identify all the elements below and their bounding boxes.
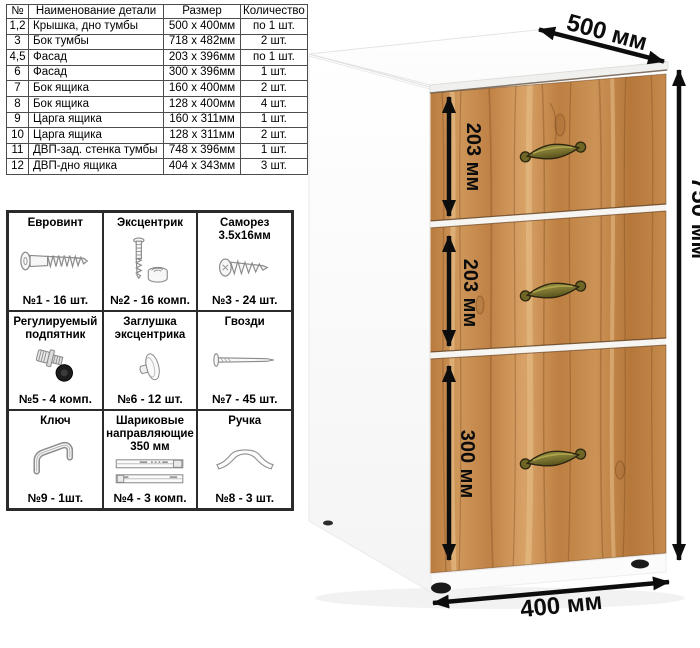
hardware-item-illustration: [28, 428, 82, 491]
table-cell: 10: [7, 128, 29, 144]
table-cell: 500 х 400мм: [164, 19, 241, 35]
hardware-item-title: Евровинт: [28, 217, 84, 230]
hardware-item-illustration: [214, 428, 276, 491]
table-cell: 300 х 396мм: [164, 65, 241, 81]
table-cell: 160 х 400мм: [164, 81, 241, 97]
dimension-label-height: 750 мм: [686, 177, 700, 259]
table-row: 10Царга ящика128 х 311мм2 шт.: [7, 128, 308, 144]
table-cell: 2 шт.: [241, 128, 308, 144]
table-row: 3Бок тумбы718 х 482мм2 шт.: [7, 34, 308, 50]
cam-lock-icon: [128, 236, 172, 286]
table-cell: 2 шт.: [241, 34, 308, 50]
table-cell: Фасад: [29, 65, 164, 81]
table-cell: 128 х 311мм: [164, 128, 241, 144]
table-cell: Бок ящика: [29, 81, 164, 97]
hardware-item-illustration: [128, 230, 172, 293]
hardware-item-illustration: [32, 342, 78, 392]
parts-table: №Наименование деталиРазмерКоличество 1,2…: [6, 4, 308, 175]
hardware-item-count: №9 - 1шт.: [28, 491, 84, 505]
table-cell: 128 х 400мм: [164, 96, 241, 112]
hardware-item-illustration: [135, 342, 165, 392]
table-cell: Бок тумбы: [29, 34, 164, 50]
bow-handle-icon: [214, 445, 276, 473]
table-cell: ДВП-дно ящика: [29, 159, 164, 175]
table-row: 4,5Фасад203 х 396ммпо 1 шт.: [7, 50, 308, 66]
hardware-item-count: №4 - 3 комп.: [113, 491, 186, 505]
table-cell: 3 шт.: [241, 159, 308, 175]
column-header: Наименование детали: [29, 5, 164, 19]
table-cell: 3: [7, 34, 29, 50]
cabinet-foot: [431, 583, 451, 594]
hardware-item-count: №2 - 16 комп.: [110, 293, 190, 307]
table-cell: 4,5: [7, 50, 29, 66]
assembly-instruction-sheet: 500 мм 750 мм 400 мм 203 мм 203 мм 300 м…: [0, 0, 700, 648]
table-cell: 11: [7, 143, 29, 159]
cabinet: [309, 29, 685, 609]
hardware-item-illustration: [113, 454, 187, 491]
table-cell: Крышка, дно тумбы: [29, 19, 164, 35]
table-cell: Фасад: [29, 50, 164, 66]
table-row: 1,2Крышка, дно тумбы500 х 400ммпо 1 шт.: [7, 19, 308, 35]
table-cell: 7: [7, 81, 29, 97]
table-cell: 1,2: [7, 19, 29, 35]
table-cell: 1 шт.: [241, 65, 308, 81]
table-cell: Царга ящика: [29, 128, 164, 144]
adjustable-foot-icon: [32, 347, 78, 387]
hardware-item-ball-slides: Шариковые направляющие 350 мм№4 - 3 комп…: [103, 410, 198, 509]
hardware-item-count: №7 - 45 шт.: [212, 392, 278, 406]
table-cell: 6: [7, 65, 29, 81]
table-cell: по 1 шт.: [241, 50, 308, 66]
table-row: 12ДВП-дно ящика404 х 343мм3 шт.: [7, 159, 308, 175]
hex-key-icon: [28, 438, 82, 480]
table-row: 11ДВП-зад. стенка тумбы748 х 396мм1 шт.: [7, 143, 308, 159]
table-cell: 404 х 343мм: [164, 159, 241, 175]
ball-slides-icon: [113, 457, 187, 487]
hardware-grid: Евровинт№1 - 16 шт.Эксцентрик№2 - 16 ком…: [6, 210, 294, 511]
hardware-item-title: Шариковые направляющие 350 мм: [106, 415, 195, 454]
hardware-item-count: №5 - 4 комп.: [19, 392, 92, 406]
table-cell: 1 шт.: [241, 112, 308, 128]
hardware-item-title: Саморез 3.5х16мм: [200, 217, 289, 243]
table-cell: 2 шт.: [241, 81, 308, 97]
nail-icon: [209, 351, 281, 369]
table-cell: 160 х 311мм: [164, 112, 241, 128]
cabinet-foot: [323, 521, 333, 526]
table-row: 9Царга ящика160 х 311мм1 шт.: [7, 112, 308, 128]
hardware-item-bow-handle: Ручка№8 - 3 шт.: [197, 410, 292, 509]
self-tapping-screw-icon: [218, 255, 272, 280]
table-cell: 203 х 396мм: [164, 50, 241, 66]
cabinet-foot: [631, 560, 649, 569]
table-cell: 748 х 396мм: [164, 143, 241, 159]
dimension-label-drawer1: 203 мм: [462, 123, 484, 192]
table-cell: по 1 шт.: [241, 19, 308, 35]
hardware-item-title: Ручка: [228, 415, 261, 428]
hardware-item-hex-key: Ключ№9 - 1шт.: [8, 410, 103, 509]
hardware-item-illustration: [19, 230, 91, 293]
dimension-label-drawer2: 203 мм: [459, 259, 481, 328]
table-cell: 1 шт.: [241, 143, 308, 159]
euro-screw-icon: [19, 248, 91, 274]
hardware-item-count: №1 - 16 шт.: [23, 293, 89, 307]
hardware-item-count: №3 - 24 шт.: [212, 293, 278, 307]
table-header-row: №Наименование деталиРазмерКоличество: [7, 5, 308, 19]
hardware-item-title: Регулируемый подпятник: [11, 316, 100, 342]
table-row: 7Бок ящика160 х 400мм2 шт.: [7, 81, 308, 97]
dimension-label-drawer3: 300 мм: [456, 430, 478, 499]
hardware-item-adjustable-foot: Регулируемый подпятник№5 - 4 комп.: [8, 311, 103, 410]
cam-cover-icon: [135, 348, 165, 386]
parts-table-body: 1,2Крышка, дно тумбы500 х 400ммпо 1 шт.3…: [7, 19, 308, 175]
table-cell: Бок ящика: [29, 96, 164, 112]
table-cell: 718 х 482мм: [164, 34, 241, 50]
hardware-item-title: Заглушка эксцентрика: [106, 316, 195, 342]
table-cell: 4 шт.: [241, 96, 308, 112]
column-header: Количество: [241, 5, 308, 19]
hardware-item-illustration: [209, 329, 281, 392]
table-row: 6Фасад300 х 396мм1 шт.: [7, 65, 308, 81]
hardware-item-title: Ключ: [40, 415, 70, 428]
hardware-item-count: №8 - 3 шт.: [215, 491, 274, 505]
column-header: Размер: [164, 5, 241, 19]
hardware-item-euro-screw: Евровинт№1 - 16 шт.: [8, 212, 103, 311]
hardware-item-count: №6 - 12 шт.: [117, 392, 183, 406]
parts-table-header: №Наименование деталиРазмерКоличество: [7, 5, 308, 19]
table-cell: 9: [7, 112, 29, 128]
hardware-item-nail: Гвозди№7 - 45 шт.: [197, 311, 292, 410]
column-header: №: [7, 5, 29, 19]
table-cell: 12: [7, 159, 29, 175]
hardware-item-self-tapping-screw: Саморез 3.5х16мм№3 - 24 шт.: [197, 212, 292, 311]
hardware-item-title: Эксцентрик: [117, 217, 183, 230]
table-cell: 8: [7, 96, 29, 112]
cabinet-side-panel: [309, 56, 431, 592]
hardware-item-title: Гвозди: [225, 316, 265, 329]
table-cell: Царга ящика: [29, 112, 164, 128]
table-cell: ДВП-зад. стенка тумбы: [29, 143, 164, 159]
hardware-item-cam-cover: Заглушка эксцентрика№6 - 12 шт.: [103, 311, 198, 410]
table-row: 8Бок ящика128 х 400мм4 шт.: [7, 96, 308, 112]
hardware-item-illustration: [218, 243, 272, 293]
hardware-item-cam-lock: Эксцентрик№2 - 16 комп.: [103, 212, 198, 311]
